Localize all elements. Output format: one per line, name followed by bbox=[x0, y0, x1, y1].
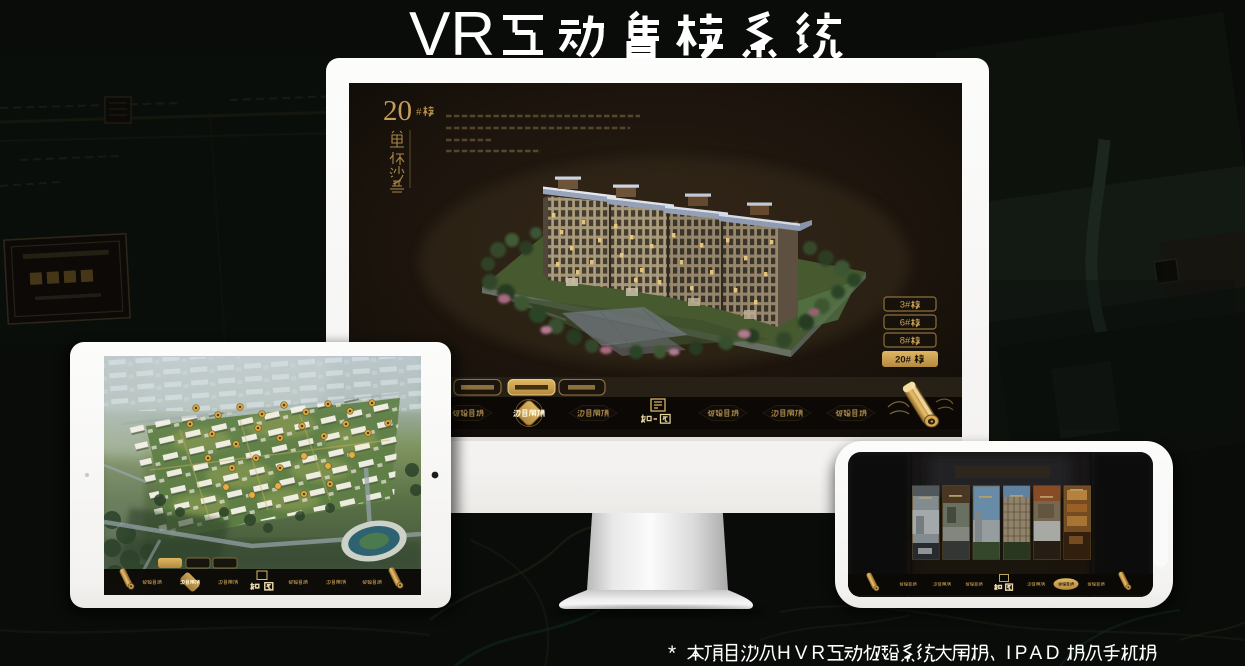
svg-text:20#: 20# bbox=[895, 355, 912, 366]
svg-text:*: * bbox=[668, 642, 676, 665]
svg-text:6#: 6# bbox=[900, 318, 911, 329]
svg-text:IPAD: IPAD bbox=[1006, 643, 1063, 664]
svg-text:3#: 3# bbox=[900, 300, 911, 311]
svg-text:#: # bbox=[416, 106, 422, 118]
svg-text:8#: 8# bbox=[900, 336, 911, 347]
svg-text:20: 20 bbox=[383, 95, 412, 127]
svg-text:HVR: HVR bbox=[777, 643, 829, 664]
